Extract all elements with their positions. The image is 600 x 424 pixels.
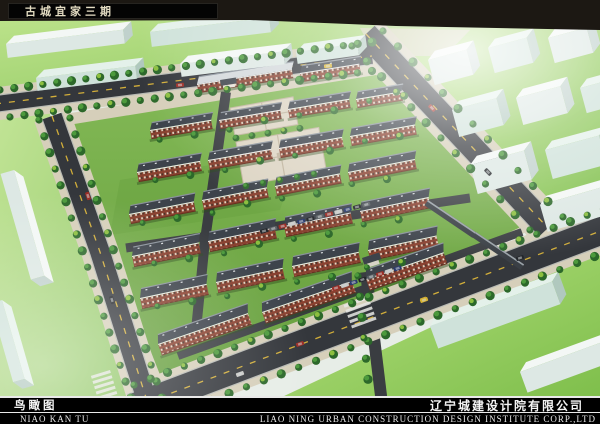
project-title-plate: 古城宜家三期	[8, 3, 218, 19]
caption-row-sub: NIAO KAN TU LIAO NING URBAN CONSTRUCTION…	[0, 413, 600, 424]
project-title: 古城宜家三期	[25, 6, 115, 18]
caption-bar: 鸟瞰图 辽宁城建设计院有限公司 NIAO KAN TU LIAO NING UR…	[0, 396, 600, 424]
company-name: 辽宁城建设计院有限公司	[430, 397, 584, 414]
aerial-rendering-scene	[0, 0, 600, 424]
architectural-rendering-board: 古城宜家三期 鸟瞰图 辽宁城建设计院有限公司 NIAO KAN TU LIAO …	[0, 0, 600, 424]
company-name-english: LIAO NING URBAN CONSTRUCTION DESIGN INST…	[260, 414, 596, 424]
drawing-caption: 鸟瞰图	[14, 397, 58, 413]
drawing-caption-pinyin: NIAO KAN TU	[20, 414, 89, 424]
caption-row-main: 鸟瞰图 辽宁城建设计院有限公司	[0, 396, 600, 413]
light-glow	[0, 20, 600, 404]
